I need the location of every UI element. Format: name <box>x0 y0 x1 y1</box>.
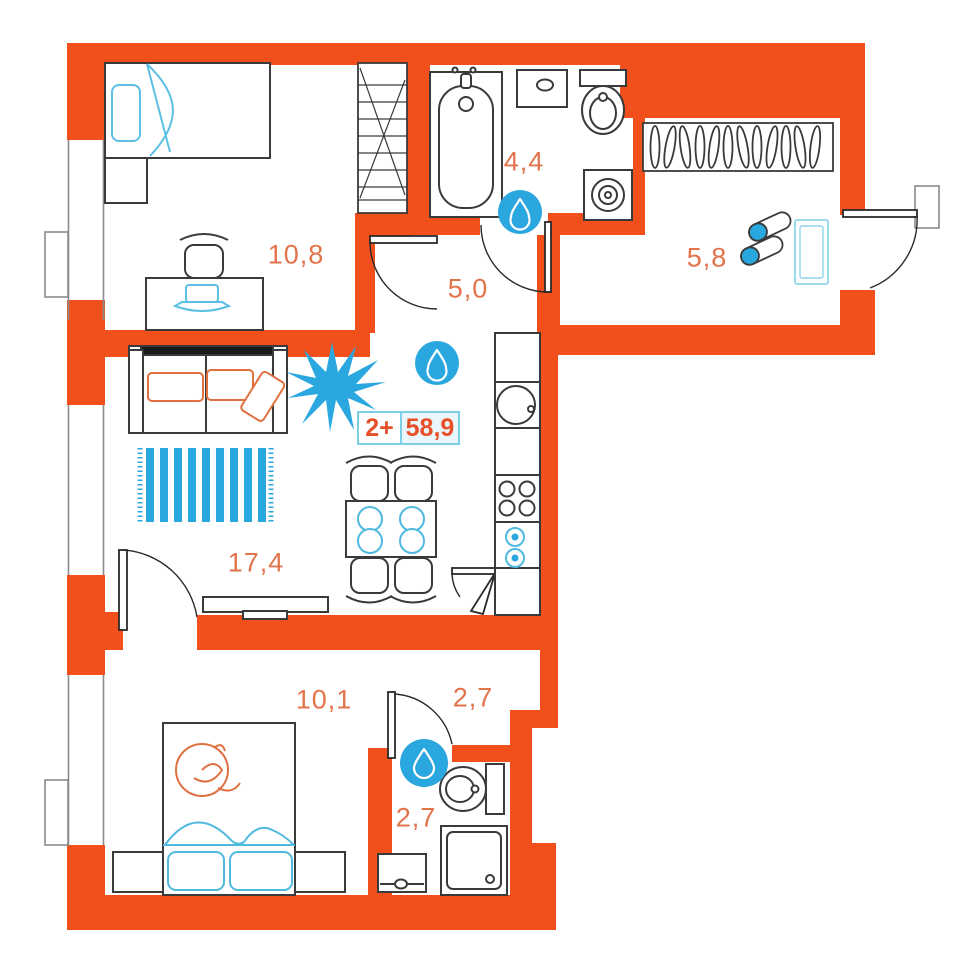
room-area-label-living: 17,4 <box>228 548 285 579</box>
door-kitchen <box>452 568 495 614</box>
room-area-label-entry-hall: 5,8 <box>687 243 728 274</box>
door-bedroom-2 <box>119 550 197 630</box>
sofa-icon <box>129 346 287 433</box>
nightstand-icon <box>105 158 147 203</box>
water-drop-icon <box>400 739 448 787</box>
door-mat-icon <box>795 220 828 284</box>
shower-icon <box>441 826 507 895</box>
room-area-label-corridor: 2,7 <box>453 683 494 714</box>
toilet-icon <box>580 70 626 134</box>
kitchen-counter-icon <box>495 333 540 615</box>
water-drop-icon <box>415 341 459 385</box>
unit-area-label: 58,9 <box>400 411 460 445</box>
floor-plan-drawing <box>0 0 960 960</box>
entry-landing <box>915 186 939 228</box>
bedroom-1-furniture <box>105 63 270 330</box>
door-bedroom-1 <box>370 236 437 309</box>
sink-icon <box>517 70 567 107</box>
window <box>69 405 104 575</box>
window <box>45 675 104 845</box>
entry-hall-furniture <box>643 123 833 284</box>
pillow-icon <box>230 852 292 890</box>
door-entrance <box>843 210 917 288</box>
kitchen-sink-icon <box>497 386 535 424</box>
bathtub-icon <box>430 68 502 218</box>
floor-plan: 10,8 4,4 5,0 5,8 17,4 10,1 2,7 2,7 2+ 58… <box>0 0 960 960</box>
washing-machine-icon <box>584 170 632 220</box>
room-area-label-bathroom-1: 4,4 <box>504 147 545 178</box>
nightstand-icon <box>295 852 345 892</box>
slippers-icon <box>738 210 793 268</box>
nightstand-icon <box>113 852 163 892</box>
room-area-label-bathroom-2: 2,7 <box>396 803 437 834</box>
chair-back-icon <box>180 234 228 240</box>
toilet-icon <box>440 764 504 814</box>
pillow-icon <box>112 85 140 141</box>
water-drop-icon <box>498 190 542 234</box>
bedroom-2-furniture <box>113 723 345 895</box>
room-area-label-hallway: 5,0 <box>448 274 489 305</box>
sink-icon <box>378 854 426 892</box>
coat-rack-icon <box>643 123 833 171</box>
window <box>45 140 104 320</box>
room-area-label-bedroom-2: 10,1 <box>296 685 353 716</box>
pillow-icon <box>168 852 224 890</box>
dining-set-icon <box>346 457 436 603</box>
wardrobe-icon <box>358 63 407 213</box>
room-area-label-bedroom-1: 10,8 <box>268 240 325 271</box>
rug-icon <box>140 448 271 522</box>
desk-chair-icon <box>185 245 223 278</box>
unit-badge: 2+ 58,9 <box>357 411 460 445</box>
laptop-icon <box>186 285 218 302</box>
unit-type-label: 2+ <box>357 411 400 445</box>
